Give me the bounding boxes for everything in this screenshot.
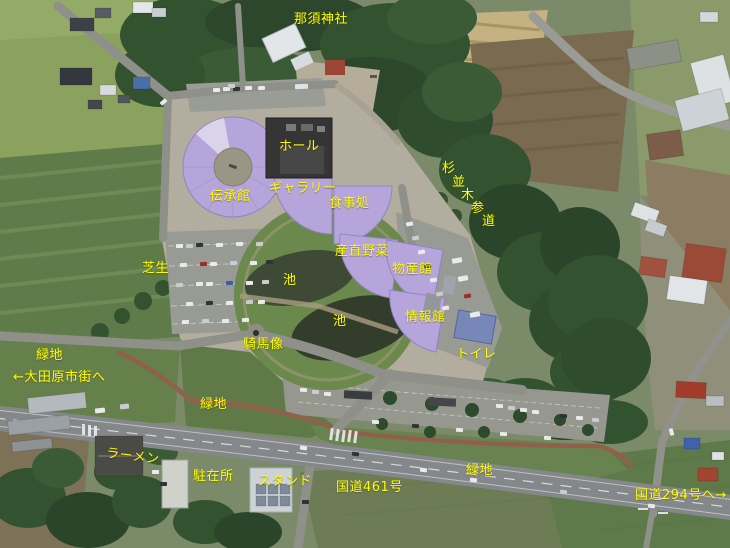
map-label-ike-lower: 池 [333,315,347,328]
map-label-chuzaisho: 駐在所 [193,470,234,483]
map-label-sanchoku-yasai: 産直野菜 [335,245,389,258]
map-label-shibafu: 芝生 [142,262,169,275]
map-label-route-461: 国道461号 [336,481,403,494]
map-label-char: 道 [482,215,496,228]
map-label-bussankan: 物産館 [392,263,433,276]
map-label-ryokuchi-mid: 緑地 [200,398,227,411]
map-label-ramen: ラーメン [105,447,160,466]
map-label-to-otawara: ←大田原市街へ [13,371,105,384]
map-label-ryokuchi-west: 緑地 [36,349,63,362]
map-label-ryokuchi-east: 緑地 [466,464,493,477]
map-label-char: 杉 [442,162,456,175]
map-label-shokujidokoro: 食事処 [329,197,370,210]
map-label-to-route-294: 国道294号へ→ [635,489,727,502]
map-label-johokan: 情報館 [405,311,446,324]
map-label-gallery: ギャラリー [269,182,337,195]
map-label-nasu-jinja: 那須神社 [294,13,348,26]
map-label-stand: スタンド [258,475,312,488]
map-label-toilet: トイレ [456,348,497,361]
label-layer: 那須神社ホール伝承館ギャラリー食事処杉並木参道芝生産直野菜物産館池池情報館トイレ… [0,0,730,548]
aerial-map: 那須神社ホール伝承館ギャラリー食事処杉並木参道芝生産直野菜物産館池池情報館トイレ… [0,0,730,548]
map-label-ike-upper: 池 [283,274,297,287]
map-label-hall: ホール [279,140,320,153]
map-label-kibazo: 騎馬像 [243,338,284,351]
map-label-denshokan: 伝承館 [210,190,251,203]
